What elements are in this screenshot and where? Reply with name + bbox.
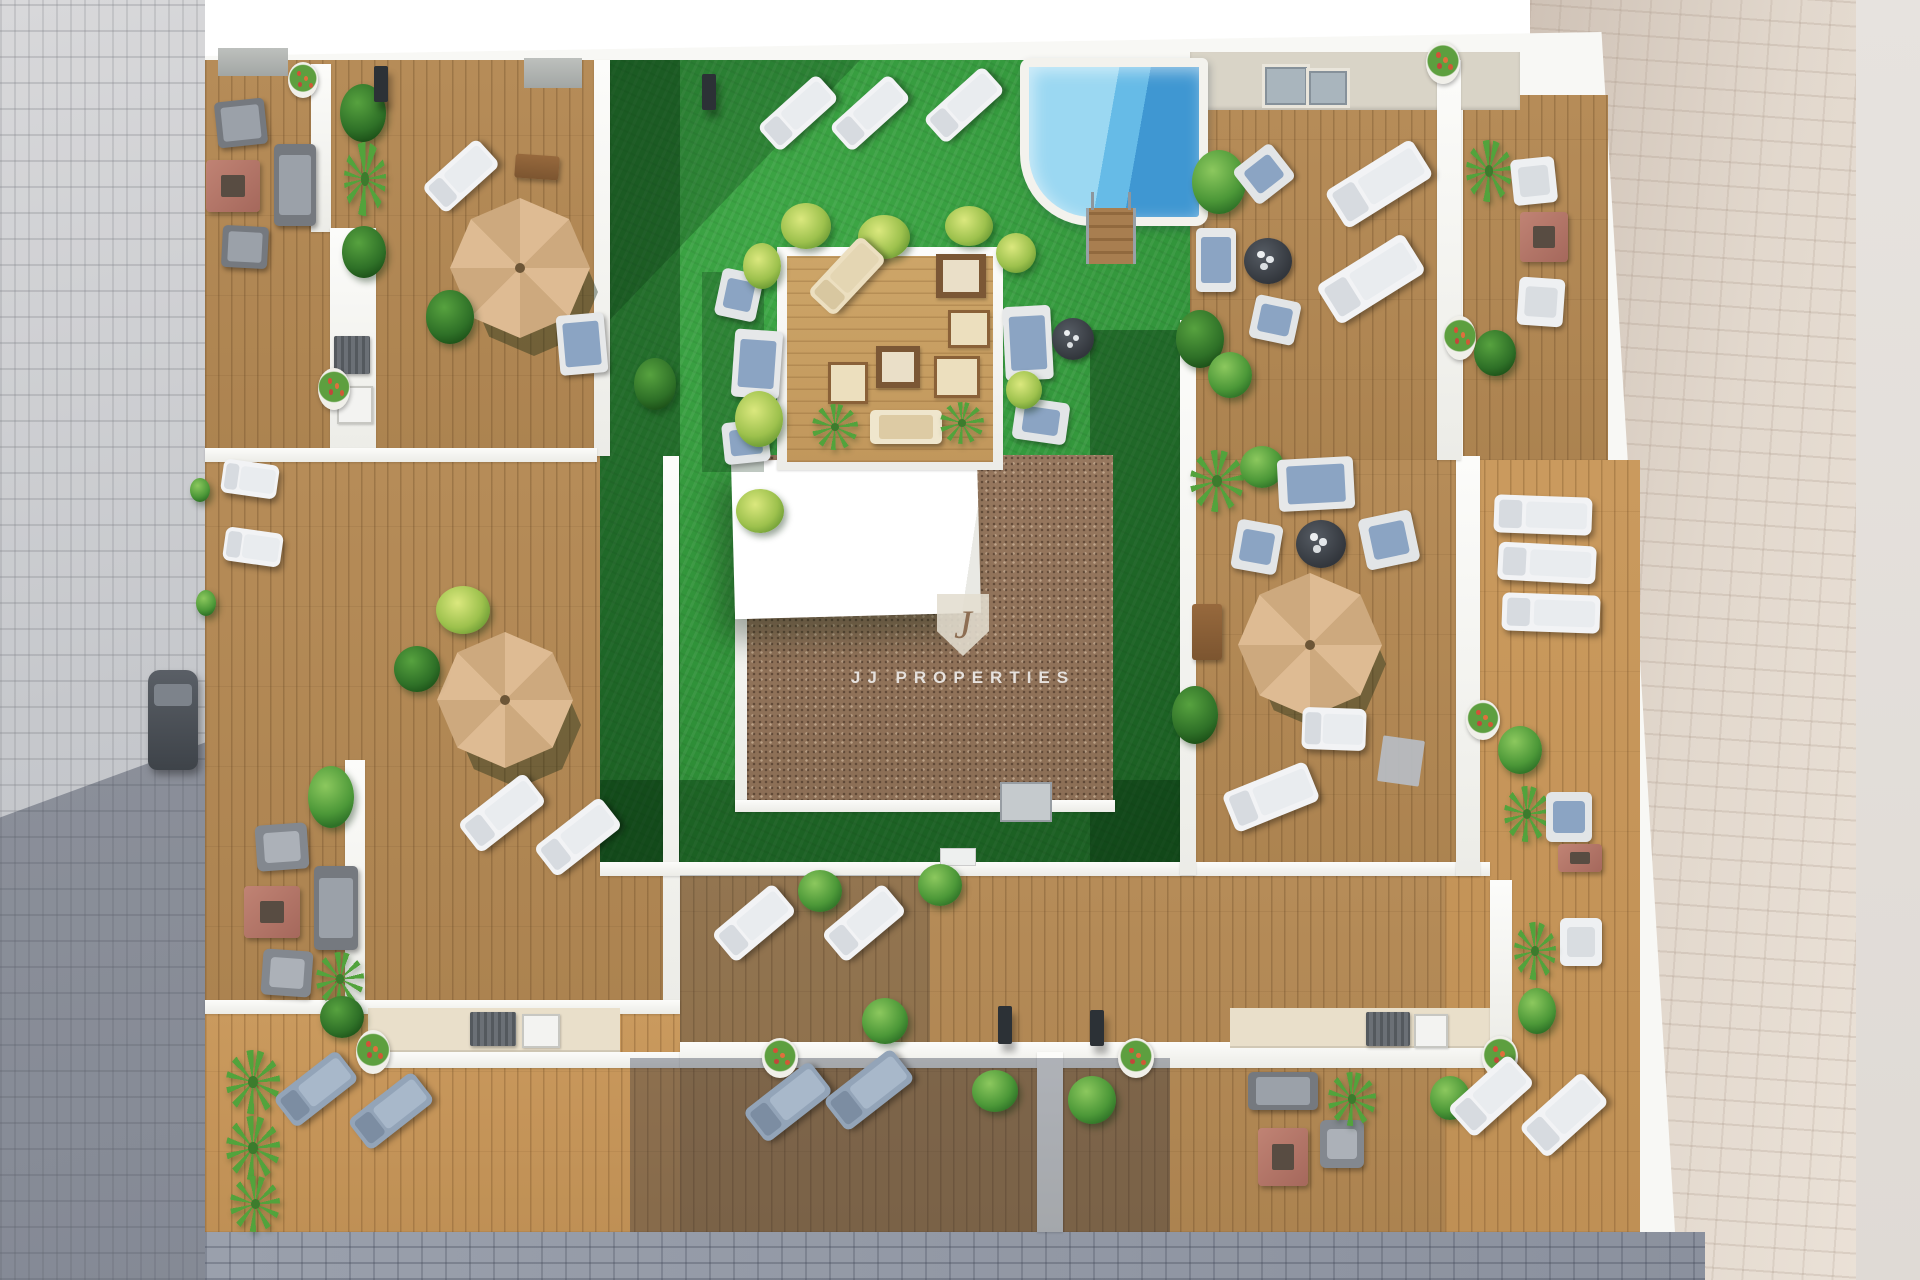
flower-planter (1118, 1038, 1154, 1078)
palm-plant (1466, 140, 1512, 202)
wall-unitB-lawn (663, 456, 679, 1007)
armchair-blue (1230, 518, 1284, 575)
walkway-unitE (1230, 1008, 1490, 1048)
palm-plant (226, 1116, 280, 1180)
awning-lawn-corner (524, 58, 582, 88)
armchair-blue (1357, 509, 1421, 571)
wall-unitI-F (1456, 456, 1480, 876)
bush (1474, 330, 1516, 376)
pergola-rug (936, 254, 986, 298)
palm-plant (1514, 922, 1556, 980)
swimming-pool (1020, 58, 1208, 226)
sofa-blue (731, 328, 784, 399)
palm-plant (226, 1050, 280, 1114)
sink (522, 1014, 560, 1048)
bush (918, 864, 962, 906)
wall-lawn-unitI (1180, 320, 1196, 875)
penthouse-wall-band (1190, 52, 1520, 110)
pergola-sofa (870, 410, 942, 444)
street-pavement-bottom (205, 1232, 1705, 1280)
wall-lawn-topleft (594, 60, 610, 456)
lamp-post (1090, 1010, 1104, 1046)
floor-cushion (828, 362, 868, 404)
lamp-post (998, 1006, 1012, 1044)
sun-lounger (1301, 707, 1366, 751)
floor-mat (1377, 735, 1425, 786)
bush (781, 203, 831, 249)
armchair-gray (254, 822, 309, 872)
bush (190, 478, 210, 502)
palm-plant (344, 142, 386, 216)
fire-table (1258, 1128, 1308, 1186)
bush (1498, 726, 1542, 774)
armchair-gray (1320, 1120, 1364, 1168)
fire-table (1520, 212, 1568, 262)
sofa-gray (1248, 1072, 1318, 1110)
palm-plant (1504, 786, 1550, 842)
bush (1208, 352, 1252, 398)
bush (320, 996, 364, 1038)
white-roof-slab (731, 455, 981, 619)
bush (798, 870, 842, 912)
bush (735, 391, 783, 447)
low-table (876, 346, 920, 388)
parasol-umbrella (437, 632, 573, 768)
palm-plant (230, 1176, 280, 1232)
sun-lounger (1493, 494, 1592, 535)
wall-unitG-H (1437, 60, 1461, 460)
flower-planter (1444, 316, 1476, 360)
armchair-gray (260, 948, 313, 997)
skylight-window (1262, 64, 1310, 108)
skylight-window (1306, 68, 1350, 108)
pool-steps (1086, 208, 1136, 264)
sofa-blue (1277, 456, 1356, 512)
round-table (1296, 520, 1346, 568)
grill (1366, 1012, 1410, 1046)
bush (308, 766, 354, 828)
sofa-blue (1196, 228, 1236, 292)
bush (736, 489, 784, 533)
armchair-white (1516, 276, 1565, 327)
bush (1518, 988, 1556, 1034)
bush (1006, 371, 1042, 409)
sofa-gray (221, 225, 269, 269)
grill (470, 1012, 516, 1046)
armchair-blue (1546, 792, 1592, 842)
sofa-gray (314, 866, 358, 950)
bush (1068, 1076, 1116, 1124)
sink (1414, 1014, 1448, 1048)
bush (945, 206, 993, 246)
bush (1192, 150, 1246, 214)
palm-plant (1328, 1072, 1376, 1126)
ac-unit (1000, 782, 1052, 822)
wall-lawn-south (600, 862, 1490, 876)
bush (426, 290, 474, 344)
flower-planter (1426, 42, 1460, 84)
armchair-blue (1248, 294, 1302, 347)
floor-cushion (948, 310, 990, 348)
sofa-blue (555, 312, 608, 376)
bush (634, 358, 676, 410)
floor-cushion (934, 356, 980, 398)
bush (196, 590, 216, 616)
armchair-white (1510, 156, 1559, 206)
fire-table (206, 160, 260, 212)
sun-lounger (1501, 592, 1600, 633)
armchair-white (1560, 918, 1602, 966)
wall-unitE-F (1490, 880, 1512, 1055)
roof-vent (940, 848, 976, 866)
wood-bench (1192, 604, 1222, 660)
bush (342, 226, 386, 278)
round-table (1244, 238, 1292, 284)
palm-plant (1190, 450, 1244, 512)
palm-plant (940, 402, 984, 444)
gravel-edge-south (735, 800, 1115, 812)
bush (436, 586, 490, 634)
awning-top-left (218, 48, 288, 76)
flower-planter (288, 62, 318, 98)
bush (394, 646, 440, 692)
flower-planter (356, 1030, 390, 1074)
bush (743, 243, 781, 289)
parked-car (148, 670, 198, 770)
sofa-gray (214, 98, 269, 149)
round-table (1052, 318, 1094, 360)
bush (996, 233, 1036, 273)
sofa-blue (1002, 305, 1054, 381)
flower-planter (1466, 700, 1500, 740)
bush (1172, 686, 1218, 744)
flower-planter (318, 368, 350, 410)
lamp-post (702, 74, 716, 110)
bush (972, 1070, 1018, 1112)
sun-lounger (1497, 541, 1597, 584)
palm-plant (812, 404, 858, 450)
sofa-gray (274, 144, 316, 226)
bush (862, 998, 908, 1044)
street-road-right (1856, 0, 1920, 1280)
property-aerial-render: J JJ PROPERTIES (0, 0, 1920, 1280)
fire-table (1558, 844, 1602, 872)
wall-unitA-B (205, 448, 597, 462)
fire-table (244, 886, 300, 938)
lamp-post (374, 66, 388, 102)
wood-bench (514, 153, 560, 180)
